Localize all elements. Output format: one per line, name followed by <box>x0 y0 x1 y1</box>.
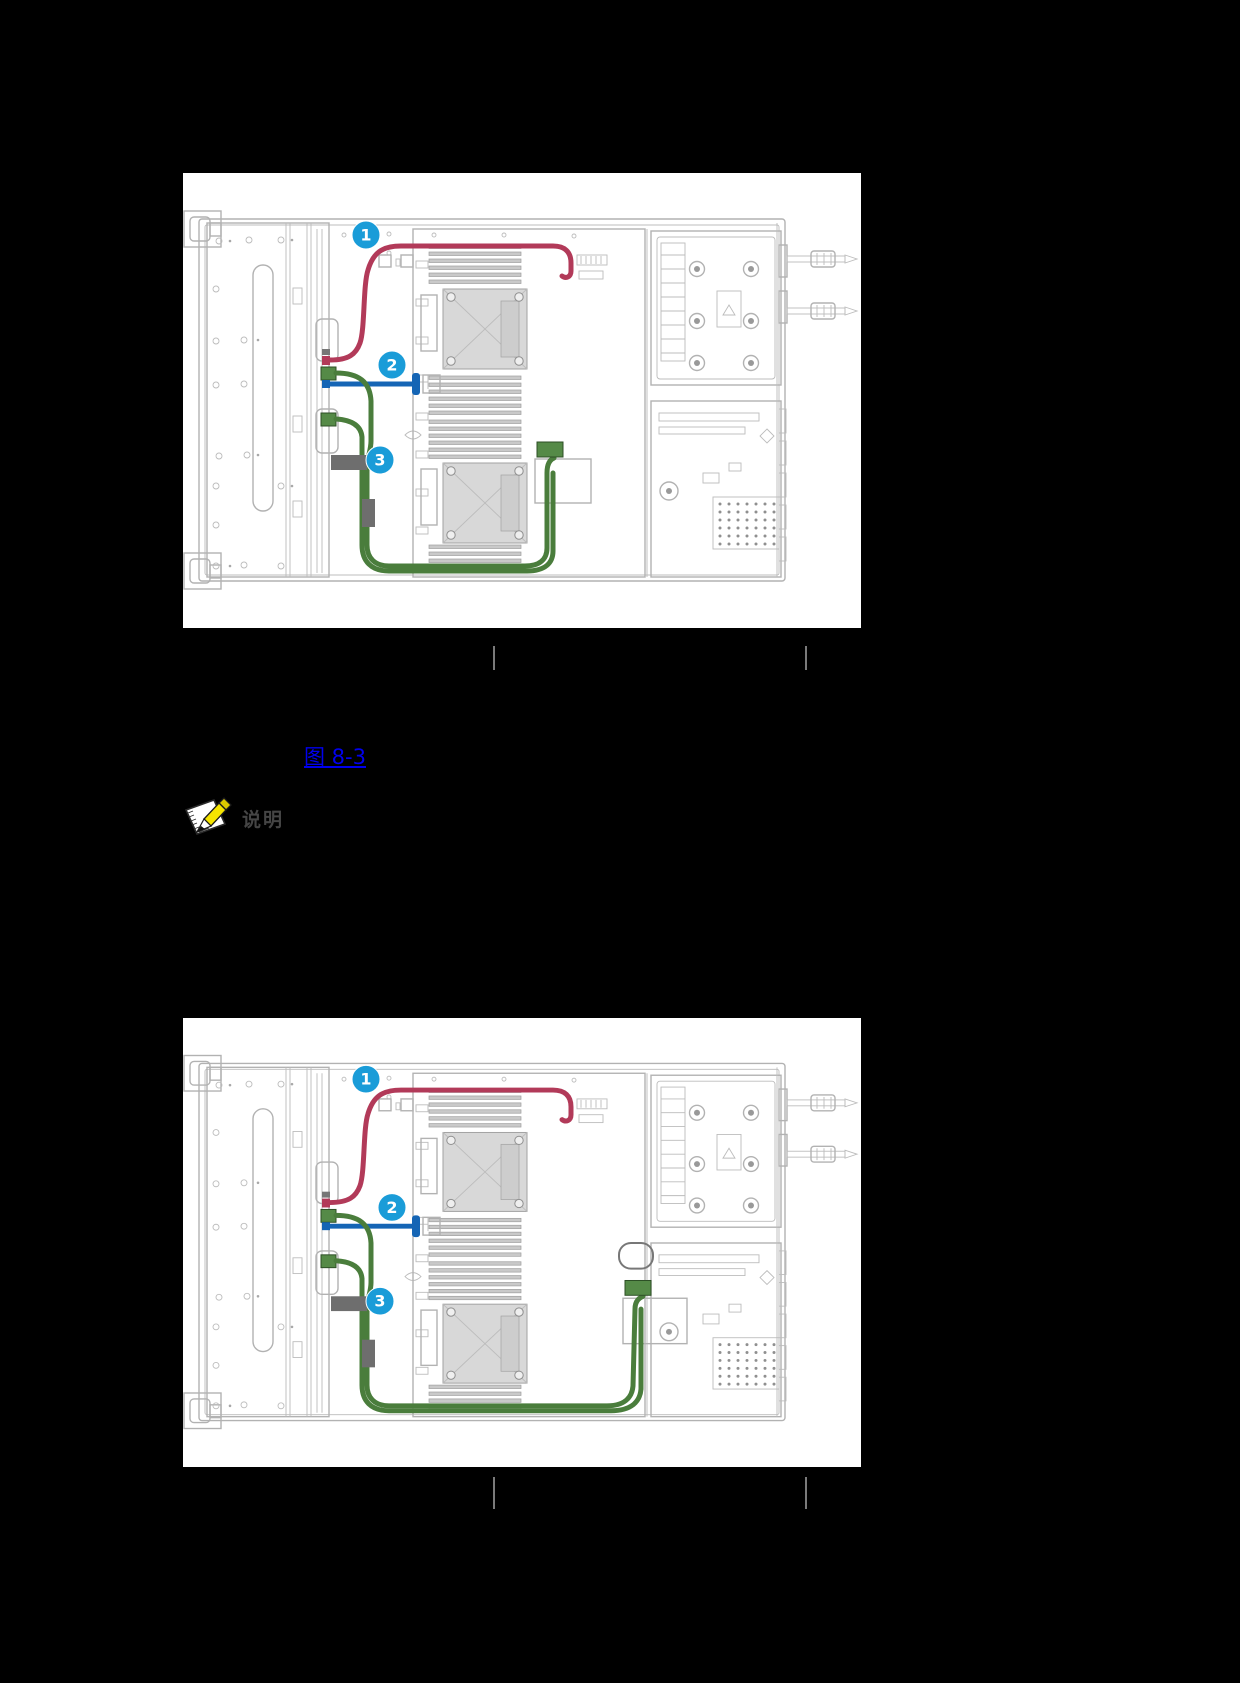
callout-1: 1 <box>352 221 380 249</box>
callout-1: 1 <box>352 1065 380 1093</box>
figure-2-server-cabling-diagram: 123 <box>183 1018 861 1467</box>
callout-3: 3 <box>366 446 394 474</box>
cable-clip <box>331 1296 367 1311</box>
cpu-heatsink <box>443 1132 527 1211</box>
note-block: 说明 <box>183 793 284 843</box>
green-cable-connector <box>625 1280 651 1295</box>
caption-separator <box>493 1477 495 1509</box>
cable-clip <box>362 499 375 527</box>
svg-text:2: 2 <box>386 1198 397 1217</box>
callout-2: 2 <box>378 1194 406 1222</box>
rear-thumbscrew <box>787 1146 857 1162</box>
svg-text:3: 3 <box>374 451 385 470</box>
rear-thumbscrew <box>787 251 857 267</box>
cpu-heatsink <box>443 463 527 543</box>
svg-text:2: 2 <box>386 356 397 375</box>
cable-clip <box>331 455 367 470</box>
caption-separator <box>493 646 495 670</box>
svg-text:1: 1 <box>360 1070 371 1089</box>
caption-separator <box>805 646 807 670</box>
rear-thumbscrew <box>787 303 857 319</box>
caption-separator <box>805 1477 807 1509</box>
page: { "page": { "background": "#000000", "pa… <box>0 0 1240 1683</box>
cable-clip <box>362 1340 375 1368</box>
rear-thumbscrew <box>787 1095 857 1111</box>
notepad-pencil-icon <box>183 793 235 843</box>
green-cable-connector <box>537 442 563 457</box>
cpu-heatsink <box>443 289 527 369</box>
svg-text:3: 3 <box>374 1292 385 1311</box>
callout-3: 3 <box>366 1287 394 1315</box>
cpu-heatsink <box>443 1304 527 1383</box>
callout-2: 2 <box>378 351 406 379</box>
note-label: 说明 <box>242 805 284 832</box>
svg-text:1: 1 <box>360 226 371 245</box>
figure-1-server-cabling-diagram: 123 <box>183 173 861 628</box>
figure-reference-link[interactable]: 图 8-3 <box>304 745 366 769</box>
